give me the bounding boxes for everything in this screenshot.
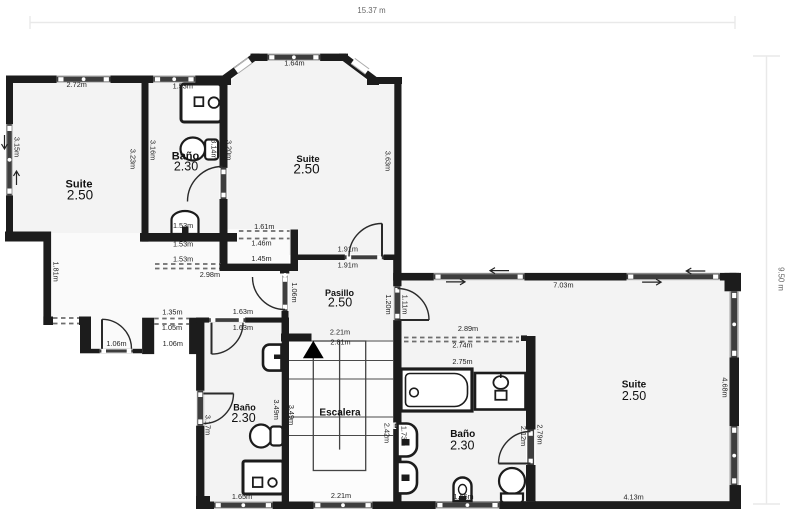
svg-text:3.23m: 3.23m (129, 149, 138, 169)
svg-text:1.64m: 1.64m (284, 59, 304, 68)
svg-text:1.81m: 1.81m (51, 261, 60, 281)
svg-text:2.79m: 2.79m (536, 424, 545, 444)
svg-text:3.49m: 3.49m (287, 405, 296, 425)
svg-text:1.45m: 1.45m (251, 254, 271, 263)
svg-text:Escalera: Escalera (319, 408, 361, 419)
svg-text:3.15m: 3.15m (13, 137, 22, 157)
svg-text:9.50 m: 9.50 m (776, 267, 785, 291)
svg-text:2.12m: 2.12m (519, 426, 528, 446)
svg-text:2.50: 2.50 (67, 188, 93, 203)
svg-text:15.37 m: 15.37 m (357, 6, 385, 15)
svg-text:1.46m: 1.46m (251, 238, 271, 247)
svg-text:2.50: 2.50 (622, 389, 646, 403)
svg-text:3.14m: 3.14m (210, 139, 219, 159)
svg-text:3.16m: 3.16m (148, 140, 157, 160)
svg-text:1.06m: 1.06m (163, 339, 183, 348)
svg-text:2.81m: 2.81m (330, 337, 350, 346)
svg-text:1.20m: 1.20m (384, 294, 393, 314)
svg-text:2.75m: 2.75m (452, 357, 472, 366)
svg-text:1.06m: 1.06m (290, 282, 299, 302)
svg-text:1.05m: 1.05m (162, 323, 182, 332)
svg-text:3.49m: 3.49m (272, 400, 281, 420)
svg-text:2.30: 2.30 (174, 160, 198, 174)
svg-text:3.17m: 3.17m (203, 415, 212, 435)
svg-text:2.21m: 2.21m (331, 491, 351, 500)
svg-text:4.68m: 4.68m (721, 377, 730, 397)
svg-text:4.13m: 4.13m (623, 492, 643, 501)
svg-text:3.63m: 3.63m (384, 151, 393, 171)
svg-text:2.50: 2.50 (293, 162, 319, 177)
svg-text:1.11m: 1.11m (401, 295, 410, 315)
svg-text:1.06m: 1.06m (106, 339, 126, 348)
svg-text:1.91m: 1.91m (338, 260, 358, 269)
svg-text:1.53m: 1.53m (173, 239, 193, 248)
svg-text:2.72m: 2.72m (67, 80, 87, 89)
svg-text:1.35m: 1.35m (162, 308, 182, 317)
svg-text:1.53m: 1.53m (173, 82, 193, 91)
svg-text:7.03m: 7.03m (553, 280, 573, 289)
svg-text:2.42m: 2.42m (383, 423, 392, 443)
svg-text:2.74m: 2.74m (452, 341, 472, 350)
svg-text:1.63m: 1.63m (233, 307, 253, 316)
svg-text:2.21m: 2.21m (330, 327, 350, 336)
svg-text:1.65m: 1.65m (232, 492, 252, 501)
svg-text:1.91m: 1.91m (338, 244, 358, 253)
svg-text:2.30: 2.30 (231, 411, 255, 425)
svg-text:2.50: 2.50 (328, 296, 352, 310)
svg-text:1.53m: 1.53m (173, 255, 193, 264)
svg-text:2.98m: 2.98m (200, 270, 220, 279)
svg-text:1.63m: 1.63m (233, 323, 253, 332)
svg-text:2.30: 2.30 (450, 439, 474, 453)
svg-text:1.61m: 1.61m (254, 222, 274, 231)
svg-text:2.89m: 2.89m (458, 324, 478, 333)
svg-text:3.20m: 3.20m (225, 140, 234, 160)
